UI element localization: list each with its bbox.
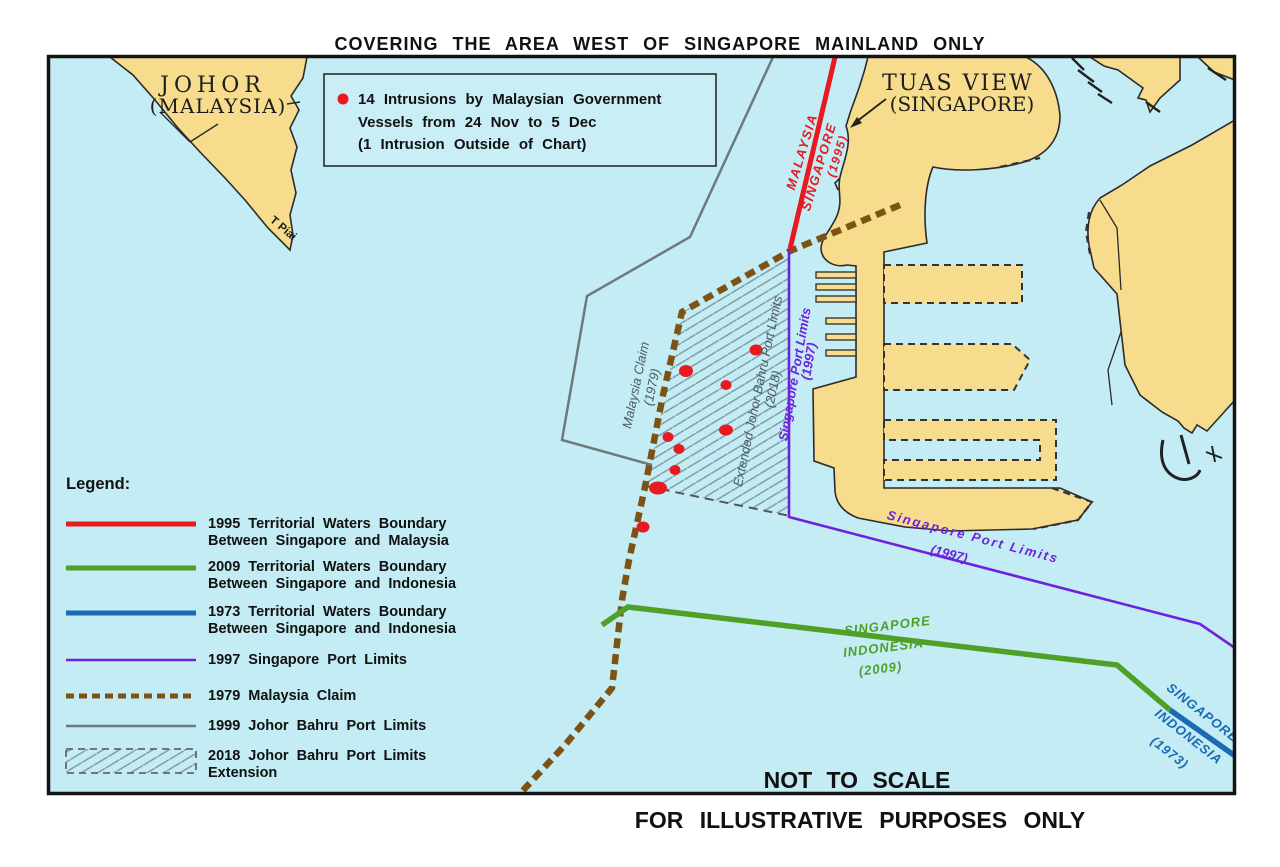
legend-label: Between Singapore and Indonesia: [208, 576, 457, 592]
legend-label: Extension: [208, 765, 277, 781]
intrusion-dot: [670, 465, 681, 475]
label-not-to-scale: NOT TO SCALE: [764, 767, 951, 793]
intrusion-dot: [721, 380, 732, 390]
map-footer-disclaimer: FOR ILLUSTRATIVE PURPOSES ONLY: [635, 807, 1085, 833]
intrusion-bullet-icon: [338, 94, 349, 105]
legend-label: 2009 Territorial Waters Boundary: [208, 559, 446, 575]
intrusion-dot: [719, 425, 733, 436]
info-line-1: 14 Intrusions by Malaysian Government: [358, 91, 661, 108]
legend-label: 2018 Johor Bahru Port Limits: [208, 748, 426, 764]
legend-label: 1973 Territorial Waters Boundary: [208, 604, 446, 620]
intrusion-dot: [637, 522, 650, 533]
intrusion-dot: [674, 444, 685, 454]
map-page: COVERING THE AREA WEST OF SINGAPORE MAIN…: [0, 0, 1280, 862]
intrusion-dot: [679, 365, 693, 377]
legend-heading: Legend:: [66, 475, 130, 493]
info-box: 14 Intrusions by Malaysian Government Ve…: [324, 74, 716, 166]
info-line-3: (1 Intrusion Outside of Chart): [358, 136, 586, 153]
intrusion-dot: [663, 432, 674, 442]
info-line-2: Vessels from 24 Nov to 5 Dec: [358, 114, 596, 131]
legend-label: 1979 Malaysia Claim: [208, 688, 356, 704]
map-title: COVERING THE AREA WEST OF SINGAPORE MAIN…: [334, 34, 985, 54]
label-johor-country: (MALAYSIA): [150, 94, 287, 118]
legend-label: 1997 Singapore Port Limits: [208, 652, 407, 668]
legend-label: 1995 Territorial Waters Boundary: [208, 516, 446, 532]
legend-label: 1999 Johor Bahru Port Limits: [208, 718, 426, 734]
map-svg: COVERING THE AREA WEST OF SINGAPORE MAIN…: [0, 0, 1280, 862]
intrusion-dot: [649, 482, 667, 495]
legend-label: Between Singapore and Malaysia: [208, 533, 450, 549]
label-tuas-country: (SINGAPORE): [890, 92, 1035, 116]
legend-label: Between Singapore and Indonesia: [208, 621, 457, 637]
